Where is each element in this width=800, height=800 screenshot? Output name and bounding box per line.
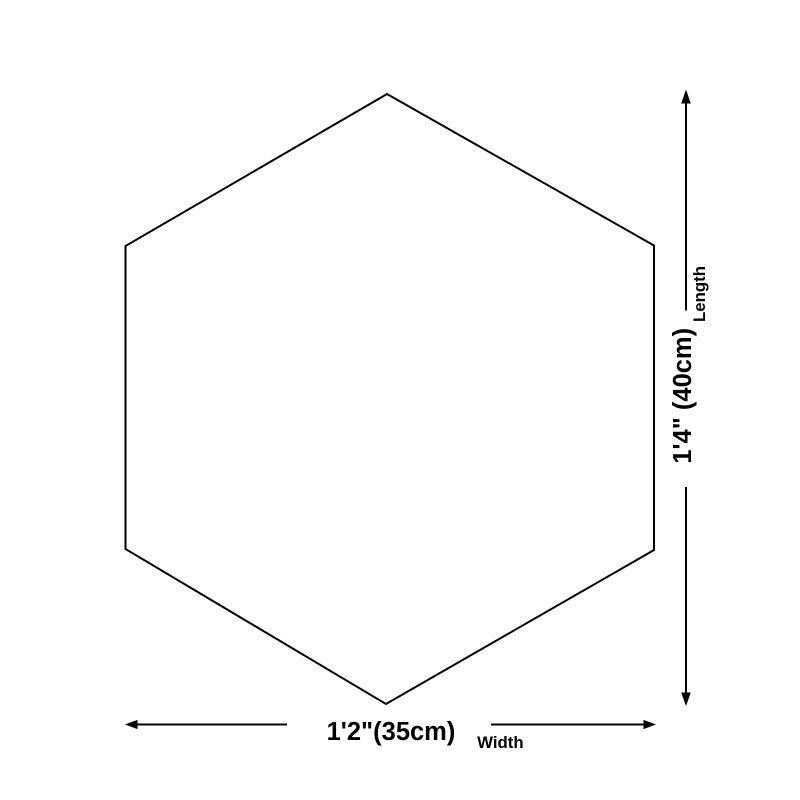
svg-text:Length: Length xyxy=(690,266,709,322)
svg-text:1'4" (40cm): 1'4" (40cm) xyxy=(669,328,697,464)
svg-text:Width: Width xyxy=(477,733,523,752)
svg-text:1'2"(35cm): 1'2"(35cm) xyxy=(327,718,456,746)
